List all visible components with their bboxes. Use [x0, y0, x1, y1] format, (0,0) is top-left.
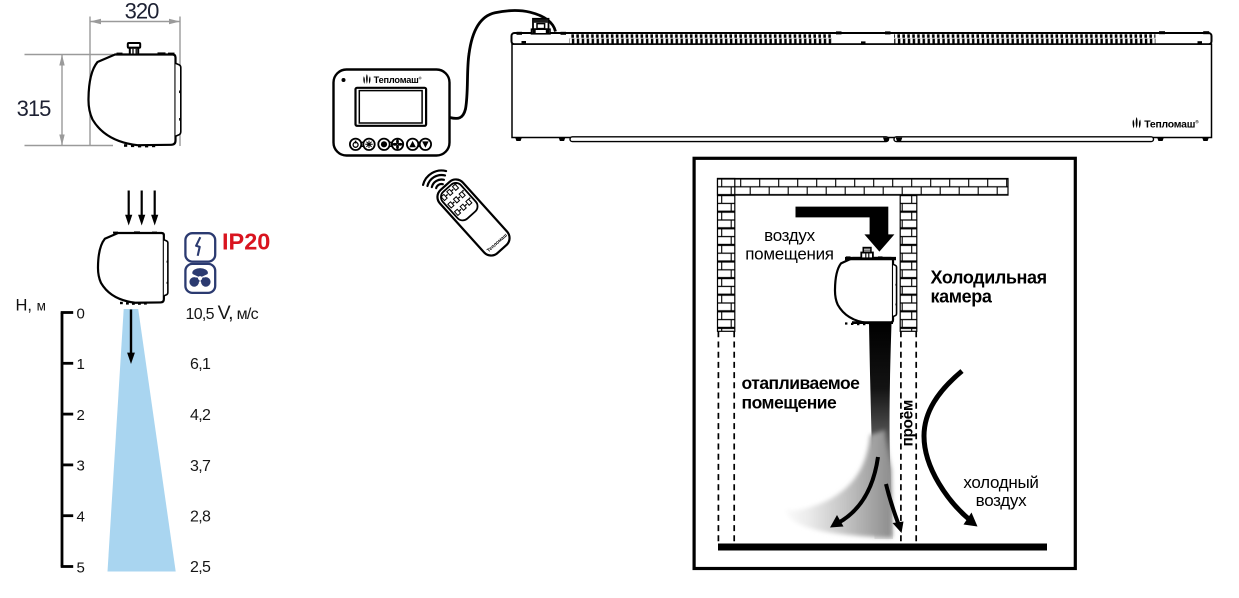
svg-text:2,5: 2,5 — [190, 559, 211, 576]
svg-text:воздух: воздух — [764, 226, 815, 245]
svg-text:Холодильная: Холодильная — [931, 268, 1047, 288]
svg-text:3,7: 3,7 — [190, 458, 211, 475]
svg-text:0: 0 — [77, 305, 85, 322]
svg-text:камера: камера — [931, 286, 993, 306]
svg-text:помещение: помещение — [742, 393, 838, 413]
svg-text:проём: проём — [900, 400, 917, 446]
svg-text:помещения: помещения — [745, 244, 834, 263]
svg-text:отапливаемое: отапливаемое — [742, 373, 861, 393]
svg-text:2,8: 2,8 — [190, 509, 211, 526]
svg-text:4,2: 4,2 — [190, 407, 211, 424]
svg-text:5: 5 — [77, 559, 85, 576]
svg-text:2: 2 — [77, 407, 85, 424]
svg-text:6,1: 6,1 — [190, 356, 211, 373]
svg-text:4: 4 — [77, 509, 85, 526]
svg-text:3: 3 — [77, 458, 85, 475]
svg-text:320: 320 — [125, 0, 159, 24]
svg-text:315: 315 — [17, 96, 51, 121]
svg-text:10,5 V, м/с: 10,5 V, м/с — [186, 302, 259, 324]
svg-text:воздух: воздух — [976, 491, 1027, 510]
svg-text:H, м: H, м — [16, 297, 46, 315]
svg-text:1: 1 — [77, 356, 85, 373]
svg-text:холодный: холодный — [963, 473, 1038, 492]
svg-text:IP20: IP20 — [222, 229, 270, 255]
